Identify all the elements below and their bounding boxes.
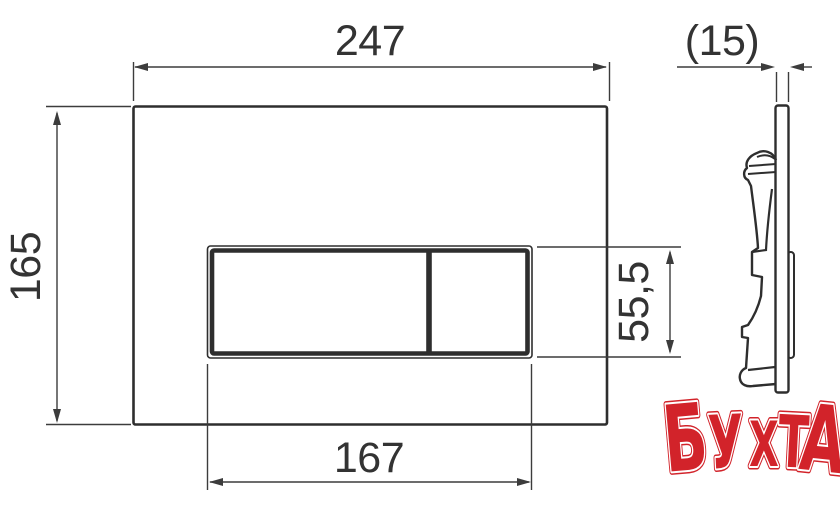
dim-label-167: 167 [334,434,404,482]
side-view-mounting-clip [740,151,776,386]
dimension-plate-width: 247 [134,17,610,101]
drawing-canvas: 247 165 (15) 55,5 167 [0,0,840,509]
dimension-plate-height: 165 [2,107,131,425]
side-view-clip-ridges [748,155,776,174]
dim-label-15: (15) [685,17,759,65]
dim-label-165: 165 [2,232,50,302]
watermark-letter: Б [659,384,712,494]
side-view-plate [776,106,789,393]
watermark-logo: Б У Х Т А Б У Х Т А Б У Х Т А [659,384,840,496]
dim-label-55-5: 55,5 [610,261,658,343]
watermark-letter: Х [749,410,779,482]
side-view-clip-foot-edge [748,367,775,370]
dimension-plate-depth: (15) [677,17,812,102]
side-view [740,106,794,393]
front-view [134,107,608,425]
watermark-letter: У [706,399,745,487]
technical-drawing: 247 165 (15) 55,5 167 [0,0,840,509]
button-frame [212,251,528,354]
dim-label-247: 247 [335,17,405,65]
